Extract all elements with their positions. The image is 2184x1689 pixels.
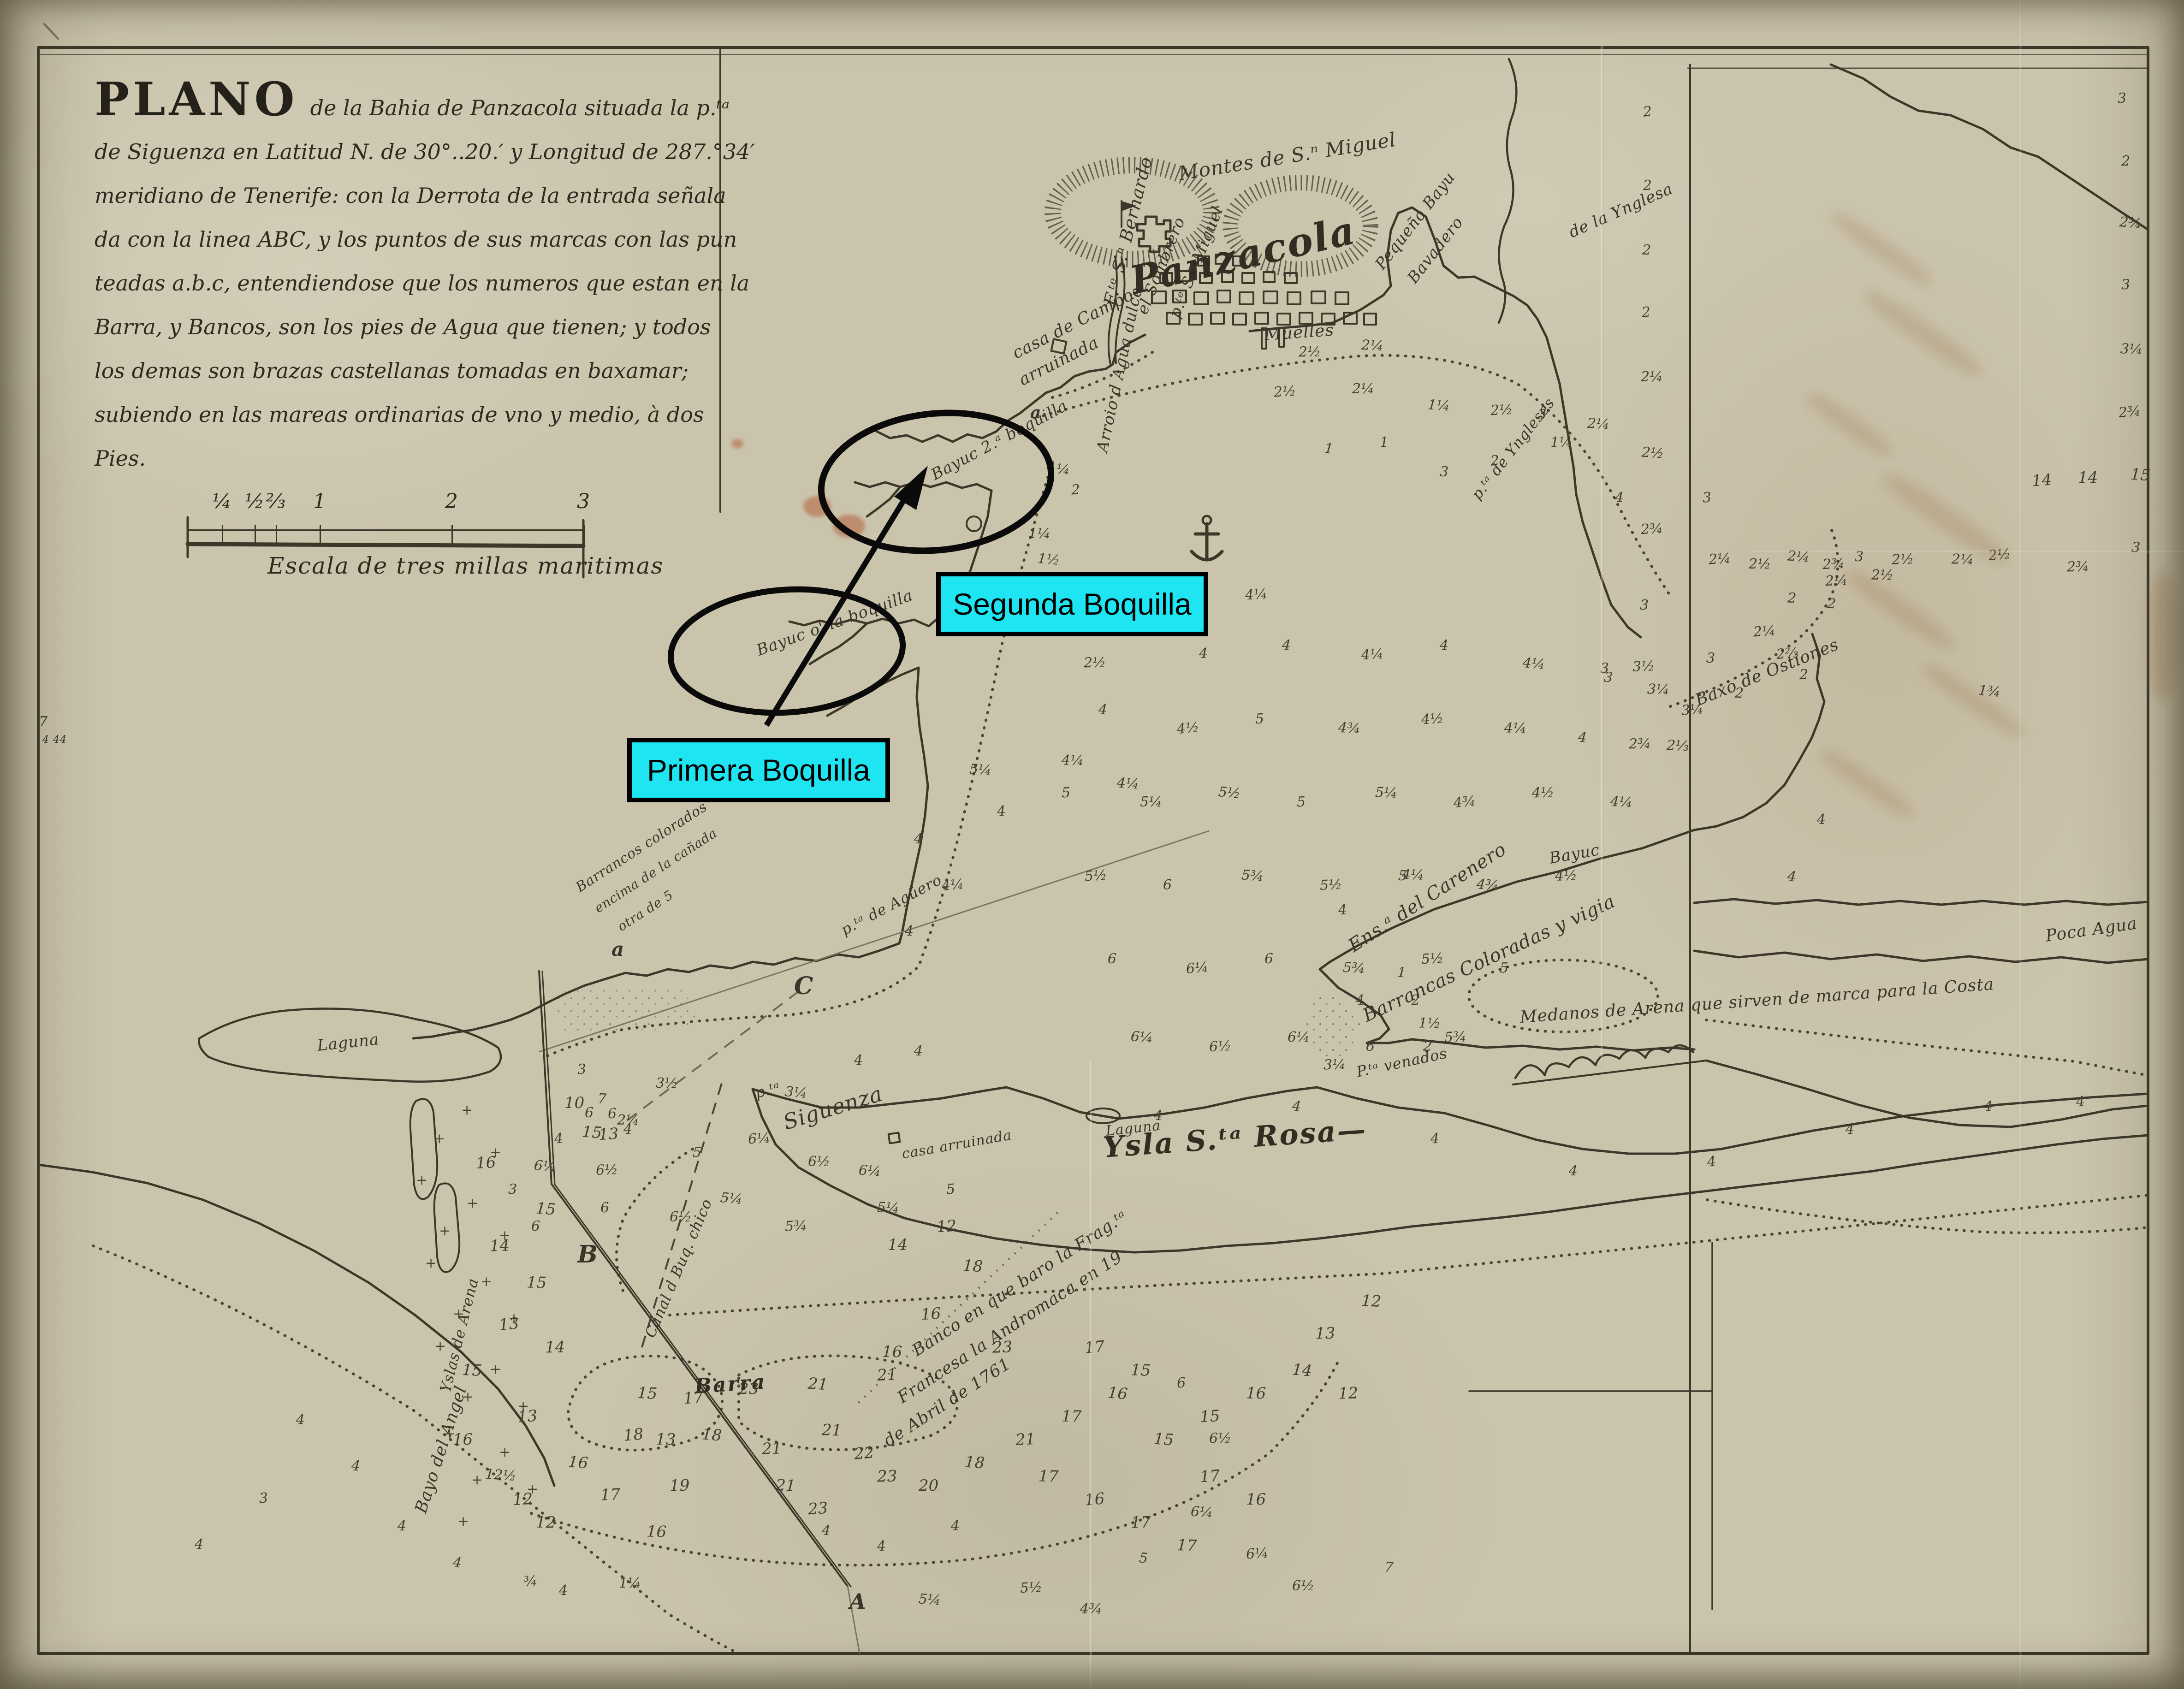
depth-sounding: 3¼ [1647, 681, 1669, 698]
depth-sounding: 2 [1490, 452, 1500, 469]
poca-agua-shore-a [1694, 899, 2148, 905]
depth-sounding: 5 [692, 1144, 702, 1161]
depth-sounding: 6½ [595, 1162, 618, 1179]
title-line: los demas son brazas castellanas tomadas… [95, 349, 731, 393]
depth-sounding: 4 [1430, 1131, 1439, 1147]
scale-tick [320, 525, 321, 546]
depth-sounding: 23 [739, 1380, 759, 1398]
depth-sounding: 5¾ [1342, 960, 1365, 977]
breaker-cross-mark: + [434, 1338, 446, 1354]
chart-sheet: PanzacolaMontes de S.ⁿ MiguelF.ᵗᵉ S.ⁿ Be… [0, 0, 2184, 1689]
depth-sounding: 4¾ [1476, 876, 1500, 894]
depth-sounding: 17 [600, 1485, 621, 1504]
breaker-cross-mark: + [467, 1195, 478, 1211]
casa-arruinada [889, 1133, 900, 1144]
depth-sounding: 6½ [1209, 1430, 1232, 1447]
depth-sounding: 3 [1439, 464, 1448, 480]
depth-sounding: 15 [637, 1384, 658, 1403]
depth-sounding: 3½ [656, 1075, 678, 1092]
depth-sounding: 5½ [1020, 1579, 1043, 1596]
depth-sounding: 23 [992, 1338, 1013, 1357]
breaker-cross-mark: + [490, 1144, 501, 1161]
depth-sounding: 2¼ [1753, 622, 1776, 640]
title-line1-rest: de la Bahia de Panzacola situada la p.ᵗᵃ [310, 86, 730, 130]
depth-sounding: 5 [1061, 785, 1071, 801]
depth-sounding: 3 [2121, 277, 2130, 293]
depth-sounding: 15 [526, 1273, 547, 1292]
depth-sounding: 4 [1983, 1098, 1993, 1115]
title-line: meridiano de Tenerife: con la Derrota de… [95, 174, 731, 218]
stain [2149, 572, 2177, 701]
segunda-boquilla-label: Segunda Boquilla [936, 572, 1208, 636]
town-panzacola [889, 255, 1376, 1143]
depth-sounding: 4 [1440, 637, 1449, 653]
depth-sounding: 1 [1397, 965, 1407, 981]
depth-sounding: 1½ [1418, 1015, 1441, 1031]
scale-tick-label: 2 [445, 490, 458, 513]
map-label: 4 44 [42, 734, 67, 746]
depth-sounding: 12½ [485, 1466, 517, 1485]
depth-sounding: 6 [1264, 951, 1274, 967]
depth-sounding: 22 [853, 1443, 875, 1464]
depth-sounding: 4¼ [1401, 866, 1424, 883]
depth-sounding: 3 [2131, 539, 2141, 556]
scale-tick [276, 525, 277, 546]
depth-sounding: 2¼ [1951, 551, 1974, 568]
depth-sounding: 2 [1643, 103, 1653, 120]
depth-sounding: 2½ [1749, 556, 1771, 572]
depth-sounding: 14 [2078, 468, 2098, 487]
depth-sounding: 12 [936, 1217, 957, 1237]
depth-sounding: 2¾ [2118, 403, 2142, 421]
depth-sounding: 2 [1799, 667, 1809, 683]
depth-sounding: 6¼ [1288, 1029, 1310, 1046]
depth-sounding: 4½ [1532, 785, 1555, 801]
depth-sounding: 1¼ [1427, 397, 1450, 414]
depth-sounding: 4 [1355, 992, 1365, 1009]
depth-sounding: 4¼ [1522, 655, 1546, 673]
depth-sounding: 4¼ [941, 876, 965, 894]
depth-sounding: 17 [1199, 1467, 1221, 1487]
depth-sounding: 17 [1131, 1513, 1151, 1532]
scale-tick-label: 3 [577, 490, 590, 513]
depth-sounding: 21 [1015, 1430, 1036, 1449]
depth-sounding: 4 [1199, 646, 1208, 662]
depth-sounding: 6¼ [1246, 1545, 1269, 1562]
route-letter-B: B [577, 1240, 598, 1268]
depth-sounding: 5¼ [969, 761, 992, 778]
depth-sounding: 16 [1246, 1384, 1266, 1403]
depth-sounding: 1¼ [1028, 526, 1051, 542]
depth-sounding: 4¼ [1610, 794, 1633, 811]
depth-sounding: 3 [1600, 660, 1609, 677]
depth-sounding: 4 [351, 1458, 361, 1474]
depth-sounding: 2 [1642, 242, 1651, 259]
depth-sounding: 7 [1384, 1559, 1394, 1576]
depth-sounding: 3 [2117, 90, 2127, 107]
depth-sounding: 17 [683, 1388, 704, 1408]
depth-sounding: 5¼ [720, 1190, 743, 1208]
depth-sounding: 6¼ [1186, 959, 1209, 977]
depth-sounding: 4 [194, 1536, 203, 1553]
title-word: PLANO [95, 77, 298, 121]
depth-sounding: 20 [919, 1476, 938, 1495]
depth-sounding: 4 [1787, 868, 1797, 885]
depth-sounding: 4 [1338, 901, 1348, 919]
depth-sounding: 4¼ [1062, 753, 1084, 769]
depth-sounding: 3¼ [1681, 701, 1704, 719]
depth-sounding: 5½ [1319, 877, 1342, 894]
depth-sounding: 3 [1640, 597, 1649, 613]
sight-line [539, 831, 1209, 1052]
depth-sounding: 15 [462, 1361, 482, 1380]
breaker-cross-mark: + [462, 1389, 474, 1405]
scale-tick-label: ½ [245, 490, 265, 513]
depth-sounding: 4 [854, 1052, 863, 1069]
breaker-cross-mark: + [425, 1255, 437, 1271]
foxing-spot [731, 439, 743, 448]
depth-sounding: 2½ [1490, 402, 1513, 419]
depth-sounding: 15 [2130, 465, 2151, 485]
depth-sounding: 1¼ [619, 1575, 641, 1592]
primera-boquilla-text: Primera Boquilla [647, 753, 870, 788]
depth-sounding: 16 [882, 1343, 902, 1362]
breaker-cross-mark: + [457, 1513, 469, 1529]
depth-sounding: 2¼ [1352, 381, 1374, 397]
depth-sounding: 14 [1291, 1360, 1313, 1381]
depth-sounding: 4 [554, 1130, 564, 1147]
segunda-boquilla-text: Segunda Boquilla [953, 587, 1191, 622]
breaker-cross-mark: + [481, 1274, 492, 1290]
depth-sounding: 2½ [1273, 383, 1296, 400]
isla-santa-rosa [753, 1087, 2148, 1252]
depth-sounding: 2¾ [1822, 556, 1845, 573]
depth-sounding: 6 [585, 1105, 594, 1121]
depth-sounding: 2¼ [1708, 550, 1731, 568]
depth-sounding: 16 [453, 1430, 473, 1449]
depth-sounding: 5 [946, 1181, 956, 1198]
depth-sounding: 2¾ [2067, 559, 2089, 575]
depth-sounding: 16 [567, 1452, 589, 1473]
depth-sounding: 1¼ [1047, 460, 1070, 478]
scale-tick-label: ¼ [212, 490, 232, 513]
scale-tick [255, 525, 256, 546]
depth-sounding: 10 [564, 1094, 584, 1112]
depth-sounding: 4¼ [1116, 775, 1139, 792]
depth-sounding: 4 [914, 1043, 923, 1060]
depth-sounding: 5¾ [1444, 1029, 1466, 1046]
depth-sounding: ¾ [523, 1573, 538, 1590]
depth-sounding: 5¼ [877, 1199, 899, 1216]
depth-sounding: 15 [1199, 1407, 1220, 1426]
depth-sounding: 5 [1139, 1550, 1149, 1567]
scale-tick [451, 525, 453, 546]
depth-sounding: 3 [1855, 549, 1864, 565]
depth-sounding: 12 [1361, 1292, 1382, 1311]
depth-sounding: 6½ [808, 1154, 830, 1170]
depth-sounding: 5¾ [1241, 867, 1264, 884]
depth-sounding: 2¼ [617, 1112, 640, 1129]
depth-sounding: 3¼ [2120, 341, 2142, 358]
depth-sounding: 4¾ [1453, 793, 1477, 811]
depth-sounding: 2¾ [1629, 736, 1651, 753]
depth-sounding: 3 [508, 1181, 517, 1197]
depth-sounding: 2½ [1641, 444, 1664, 462]
depth-sounding: 23 [807, 1499, 829, 1519]
primera-boquilla-label: Primera Boquilla [627, 738, 890, 802]
depth-sounding: 4 [997, 803, 1006, 819]
depth-sounding: 1 [1379, 434, 1389, 451]
depth-sounding: 5¼ [918, 1591, 941, 1608]
title-line: de Siguenza en Latitud N. de 30°..20.′ y… [95, 130, 731, 174]
northeast-coast [1831, 65, 2148, 230]
depth-sounding: 4 [1816, 812, 1826, 828]
depth-sounding: 4 [914, 831, 923, 847]
depth-sounding: 6 [600, 1200, 610, 1216]
depth-sounding: 3 [1706, 650, 1715, 667]
depth-sounding: 2½ [1891, 551, 1914, 568]
depth-sounding: 2⅓ [1666, 737, 1689, 754]
title-line: Pies. [95, 437, 731, 480]
depth-sounding: 4 [1568, 1163, 1578, 1179]
title-line: da con la linea ABC, y los puntos de sus… [95, 218, 731, 261]
river-ynglesa [1499, 59, 1516, 323]
depth-sounding: 13 [598, 1125, 619, 1144]
depth-sounding: 2¼ [1641, 369, 1663, 385]
depth-sounding: 6 [1365, 1038, 1376, 1055]
depth-sounding: 4¾ [1338, 720, 1361, 737]
depth-sounding: 4 [905, 923, 914, 939]
depth-sounding: 4 [821, 1523, 831, 1539]
depth-sounding: 5¼ [1140, 794, 1163, 811]
scale-tick [583, 525, 585, 546]
depth-sounding: 6¼ [748, 1130, 771, 1147]
depth-sounding: 4 [2076, 1093, 2085, 1110]
breaker-cross-mark: + [439, 1223, 451, 1239]
depth-sounding: 2 [1787, 590, 1797, 606]
bayou-segunda [855, 482, 991, 491]
poca-agua-shore-b [1694, 951, 2148, 963]
depth-sounding: 5¼ [1375, 784, 1397, 801]
depth-sounding: 5¾ [784, 1218, 807, 1235]
depth-sounding: 5½ [1218, 784, 1241, 802]
depth-sounding: 16 [1084, 1489, 1105, 1510]
route-letter-C: C [794, 972, 813, 1000]
title-line: teadas a.b.c, entendiendose que los nume… [95, 261, 731, 305]
depth-sounding: 7 [597, 1091, 607, 1108]
depth-sounding: 5 [1500, 960, 1508, 976]
depth-sounding: 4 [398, 1518, 407, 1534]
depth-sounding: 4 [1707, 1153, 1717, 1170]
depth-sounding: 14 [545, 1338, 565, 1357]
depth-sounding: 18 [623, 1425, 644, 1445]
breaker-cross-mark: + [433, 1131, 445, 1147]
depth-sounding: 3 [1702, 489, 1712, 506]
depth-sounding: 6 [531, 1218, 540, 1235]
depth-sounding: 4¼ [1504, 720, 1526, 736]
depth-sounding: 6¼ [1190, 1504, 1213, 1521]
depth-sounding: 2¼ [1361, 337, 1384, 354]
depth-sounding: 13 [656, 1430, 676, 1449]
map-label: 7 [39, 714, 48, 730]
depth-sounding: 4 [1846, 1121, 1855, 1138]
anchor-icon [1192, 516, 1222, 560]
scale-caption: Escala de tres millas maritimas [267, 552, 664, 579]
breaker-cross-mark: + [416, 1172, 427, 1188]
depth-sounding: 2⅔ [1776, 645, 1799, 663]
depth-sounding: 3 [259, 1490, 268, 1507]
depth-sounding: 17 [1084, 1337, 1105, 1357]
depth-sounding: 6¼ [534, 1157, 557, 1175]
depth-sounding: 17 [1062, 1407, 1082, 1426]
depth-sounding: 15 [1153, 1430, 1175, 1450]
depth-sounding: 2 [1071, 482, 1080, 498]
depth-sounding: 2 [1734, 685, 1744, 702]
depth-sounding: 12 [1338, 1384, 1359, 1403]
scale-tick [222, 525, 223, 546]
breaker-cross-mark: + [461, 1102, 473, 1118]
depth-sounding: 4¼ [1361, 646, 1384, 663]
depth-sounding: 2½ [1299, 344, 1321, 361]
depth-sounding: 5½ [1084, 867, 1107, 884]
depth-sounding: 6¼ [858, 1162, 881, 1179]
depth-sounding: 4¼ [1245, 586, 1268, 603]
depth-sounding: 4 [452, 1554, 463, 1571]
depth-sounding: 18 [701, 1425, 723, 1445]
depth-sounding: 1¼ [1550, 434, 1573, 451]
depth-sounding: 16 [1246, 1490, 1266, 1509]
depth-sounding: 6¼ [1130, 1028, 1153, 1046]
breaker-cross-mark: + [499, 1227, 510, 1244]
depth-sounding: 5 [1296, 794, 1306, 811]
foxing-spot [803, 496, 831, 517]
depth-sounding: 6½ [1292, 1578, 1314, 1594]
depth-sounding: 14 [888, 1236, 908, 1254]
depth-sounding: 16 [646, 1522, 667, 1541]
depth-sounding: 2 [1827, 595, 1837, 612]
depth-sounding: 1 [1324, 440, 1334, 457]
depth-sounding: 3 [1537, 407, 1547, 423]
title-line: PLANO de la Bahia de Panzacola situada l… [95, 77, 731, 130]
route-letter-a: a [611, 938, 624, 960]
depth-sounding: 4 [1282, 637, 1291, 653]
depth-sounding: 2¼ [1787, 548, 1810, 565]
depth-sounding: 4 [1098, 702, 1107, 718]
depth-sounding: 21 [775, 1476, 796, 1495]
breaker-cross-mark: + [499, 1444, 510, 1460]
breaker-cross-mark: + [508, 1310, 520, 1327]
depth-sounding: 2¾ [2119, 214, 2142, 232]
breaker-cross-mark: + [527, 1481, 538, 1497]
depth-sounding: 4 [296, 1412, 305, 1428]
depth-sounding: 2 [1641, 304, 1651, 320]
depth-sounding: 2 [1411, 992, 1420, 1008]
gulf-mainland [38, 1165, 554, 1486]
depth-sounding: 17 [1176, 1536, 1197, 1555]
depth-sounding: 1½ [1037, 551, 1061, 569]
depth-sounding: 12 [536, 1513, 556, 1532]
depth-sounding: 4 [877, 1538, 886, 1554]
depth-sounding: 4½ [1555, 867, 1577, 884]
breaker-cross-mark: + [471, 1472, 483, 1488]
depth-sounding: 6 [607, 1105, 617, 1122]
depth-sounding: 4 [1578, 729, 1587, 746]
breaker-cross-mark: + [490, 1361, 501, 1377]
depth-sounding: 15 [535, 1199, 557, 1219]
depth-sounding: 21 [821, 1421, 842, 1440]
depth-sounding: 21 [877, 1365, 897, 1385]
scale-tick-label: 1 [313, 490, 326, 513]
depth-sounding: 2¾ [1640, 521, 1663, 538]
title-block: PLANO de la Bahia de Panzacola situada l… [95, 77, 731, 480]
cliff-stipple [553, 987, 701, 1033]
route-letter-A: A [849, 1589, 866, 1614]
depth-sounding: 16 [1107, 1383, 1128, 1404]
depth-sounding: 16 [920, 1304, 941, 1324]
depth-sounding: 5 [1255, 711, 1264, 727]
depth-sounding: 18 [962, 1256, 984, 1276]
depth-sounding: 2¼ [1587, 415, 1610, 433]
depth-sounding: 4 [1615, 490, 1624, 506]
depth-sounding: 3¼ [1323, 1057, 1346, 1073]
depth-sounding: 3¼ [784, 1084, 808, 1102]
depth-sounding: 2¼ [1825, 572, 1848, 589]
scale-tick-label: ⅔ [266, 490, 286, 513]
east-shore [1250, 207, 1641, 637]
depth-sounding: 15 [1130, 1361, 1151, 1380]
title-line: subiendo en las mareas ordinarias de vno… [95, 393, 731, 437]
depth-sounding: 5½ [1421, 950, 1444, 967]
depth-sounding: 21 [761, 1439, 782, 1458]
depth-sounding: 13 [1315, 1324, 1335, 1343]
depth-sounding: 21 [807, 1375, 829, 1394]
title-line: Barra, y Bancos, son los pies de Agua qu… [95, 305, 731, 349]
depth-sounding: 19 [670, 1476, 690, 1495]
foxing-spot [833, 515, 865, 538]
breaker-cross-mark: + [453, 1306, 464, 1322]
breaker-cross-mark: + [444, 1426, 455, 1442]
depth-sounding: 14 [2031, 471, 2053, 491]
corner-mark [44, 24, 58, 39]
depth-sounding: 6 [1107, 951, 1116, 967]
depth-sounding: 6½ [1209, 1038, 1232, 1055]
depth-sounding: 4 [558, 1582, 568, 1599]
depth-sounding: 17 [1038, 1467, 1059, 1486]
depth-sounding: 6½ [670, 1209, 692, 1226]
depth-sounding: 2½ [1084, 655, 1106, 671]
depth-sounding: 4½ [1176, 719, 1200, 737]
depth-sounding: 4 [1154, 1108, 1163, 1124]
depth-sounding: 6 [1176, 1375, 1187, 1392]
depth-sounding: 2 [1423, 1038, 1432, 1055]
depth-sounding: 4½ [1421, 710, 1444, 728]
breaker-cross-mark: + [517, 1398, 529, 1414]
depth-sounding: 6 [1163, 877, 1172, 893]
depth-sounding: 3½ [1632, 658, 1655, 675]
depth-sounding: 18 [964, 1453, 985, 1473]
depth-sounding: 4¾ [1080, 1601, 1103, 1618]
depth-sounding: 4 [951, 1518, 960, 1534]
depth-sounding: 4 [1292, 1098, 1302, 1115]
depth-sounding: 3 [577, 1061, 587, 1078]
depth-sounding: 23 [877, 1467, 897, 1486]
route-letter-a: a [1030, 403, 1041, 422]
depth-sounding: 2 [1643, 178, 1652, 194]
depth-sounding: 2 [2121, 153, 2131, 169]
